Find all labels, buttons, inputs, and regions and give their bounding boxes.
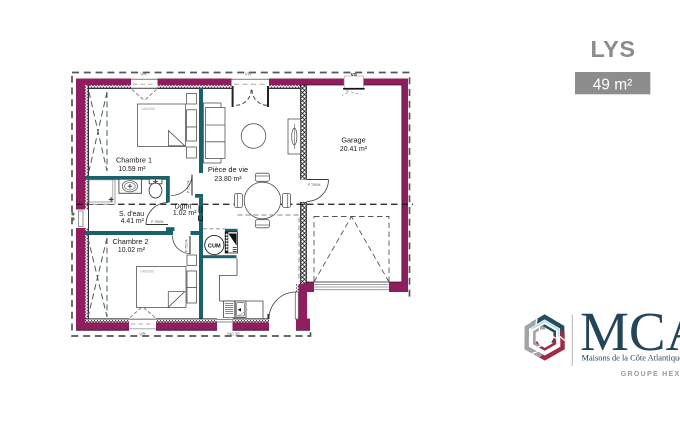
svg-text:240.30: 240.30 xyxy=(227,332,240,337)
svg-text:CUM: CUM xyxy=(208,243,221,249)
svg-text:P 75004: P 75004 xyxy=(187,180,191,193)
svg-text:VR: VR xyxy=(139,332,146,337)
svg-text:P 75004: P 75004 xyxy=(151,220,164,224)
svg-text:140x200: 140x200 xyxy=(141,107,155,111)
svg-text:20.41 m²: 20.41 m² xyxy=(340,146,368,153)
svg-text:140x200: 140x200 xyxy=(140,270,154,274)
svg-text:Chambre 2: Chambre 2 xyxy=(112,237,148,246)
svg-text:Maisons de la Côte Atlantique: Maisons de la Côte Atlantique xyxy=(582,354,680,363)
svg-text:Pièce de vie: Pièce de vie xyxy=(208,165,248,174)
svg-text:4.41 m²: 4.41 m² xyxy=(121,218,145,225)
svg-text:LYS: LYS xyxy=(590,36,635,62)
svg-text:10.59 m²: 10.59 m² xyxy=(118,166,146,173)
svg-text:10.02 m²: 10.02 m² xyxy=(118,247,146,254)
svg-text:1.02 m²: 1.02 m² xyxy=(173,210,197,217)
svg-text:P 75004: P 75004 xyxy=(308,183,321,187)
svg-text:49 m²: 49 m² xyxy=(593,77,633,94)
svg-text:S. d'eau: S. d'eau xyxy=(119,211,144,218)
svg-text:23.80 m²: 23.80 m² xyxy=(214,176,242,183)
svg-text:VR: VR xyxy=(140,72,147,77)
svg-text:GROUPE HEXAÔM: GROUPE HEXAÔM xyxy=(621,369,680,378)
svg-text:Garage: Garage xyxy=(341,135,365,144)
svg-text:VS: VS xyxy=(351,72,358,78)
svg-text:P 75004: P 75004 xyxy=(185,239,189,252)
svg-text:Chambre 1: Chambre 1 xyxy=(116,156,152,165)
svg-text:VR: VR xyxy=(245,72,252,77)
